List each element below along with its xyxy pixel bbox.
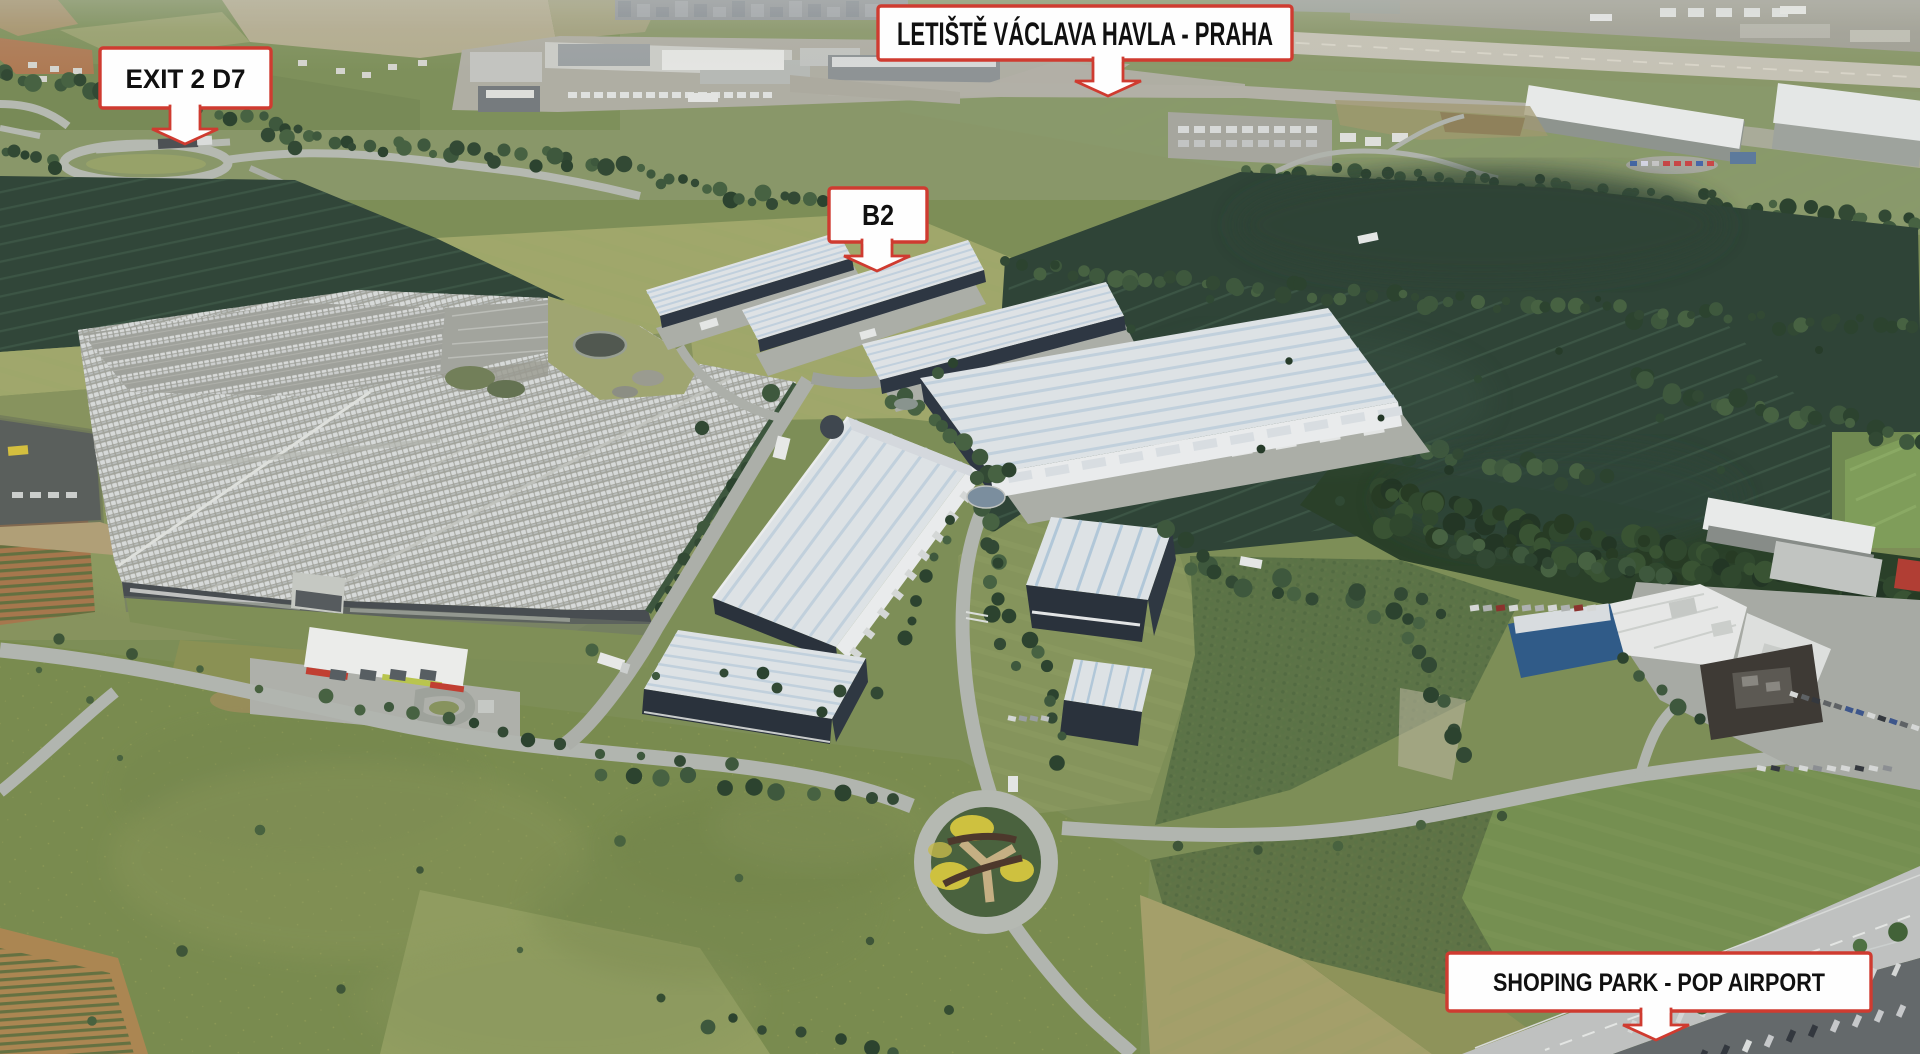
svg-text:LETIŠTĚ VÁCLAVA HAVLA - PRAHA: LETIŠTĚ VÁCLAVA HAVLA - PRAHA: [897, 16, 1273, 52]
svg-text:EXIT 2 D7: EXIT 2 D7: [126, 64, 246, 94]
svg-text:SHOPING PARK - POP AIRPORT: SHOPING PARK - POP AIRPORT: [1493, 969, 1825, 997]
svg-text:B2: B2: [862, 200, 894, 232]
